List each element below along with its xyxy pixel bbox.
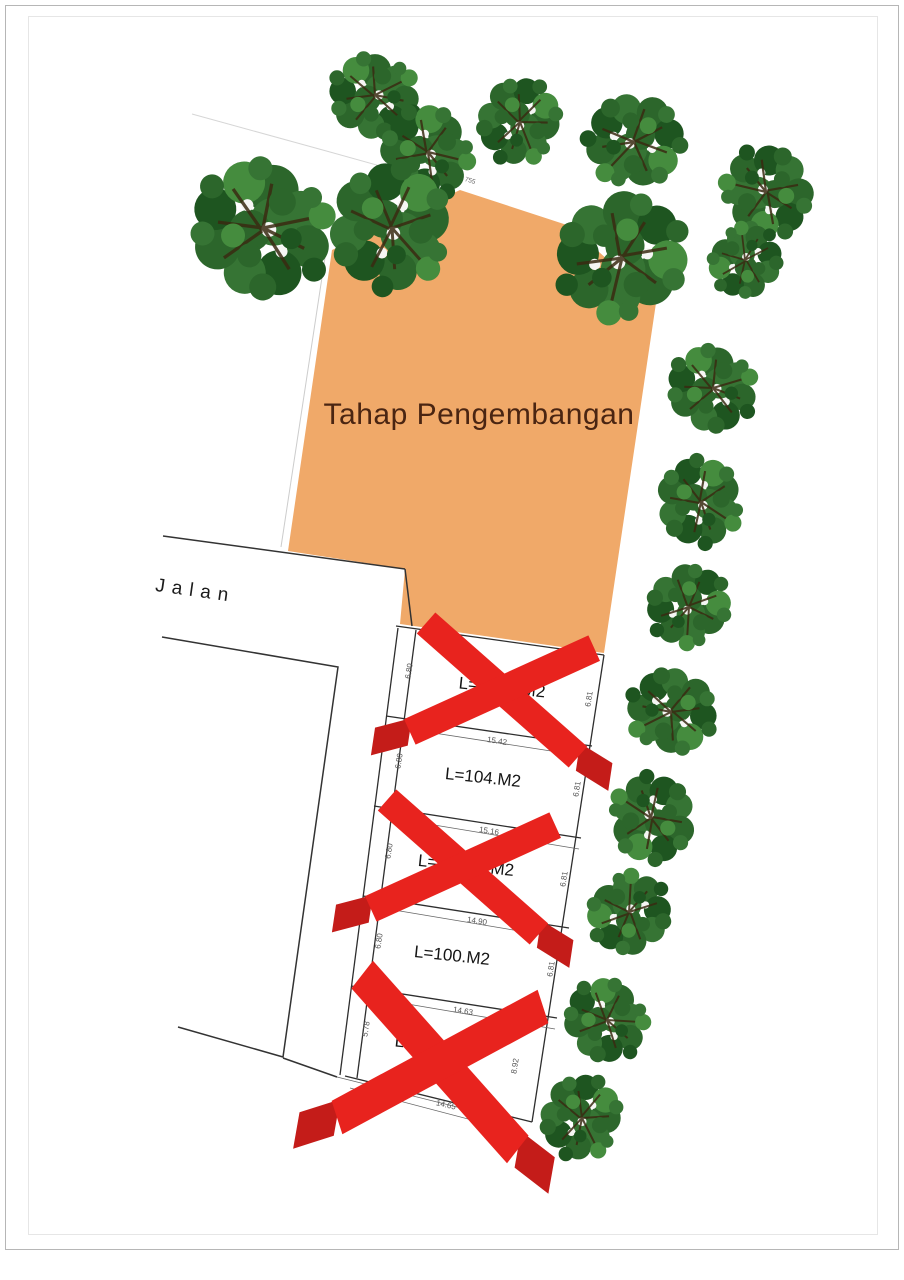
plot-5-dim-bottom: 14.65 (435, 1098, 457, 1111)
plot-5-label: L= 2 (394, 1032, 482, 1061)
plot-1-label-right: M2 (521, 680, 547, 702)
plot-2-label: L=104.M2 (444, 764, 522, 792)
plot-2-dim-right: 6.81 (571, 781, 582, 798)
plot-2-label-text: L=104.M2 (444, 764, 522, 792)
plot-5-dim-right: 8.92 (509, 1058, 520, 1075)
plot-2-dim-left: 6.80 (393, 753, 404, 770)
plot-4-label: L=100.M2 (413, 942, 491, 970)
road-label: Jalan (154, 575, 237, 608)
plot-1-dim-left: 6.80 (403, 663, 414, 680)
plot-3-dim-left: 6.80 (383, 843, 394, 860)
plot-2-dim-bottom: 15.16 (478, 825, 499, 837)
site-plan-page: Tahap Pengembangan 755 Jalan L= M2 6.80 … (0, 0, 904, 1280)
plot-1-label: L= M2 (458, 674, 547, 703)
plot-4-dim-left: 6.80 (373, 933, 384, 950)
plot-5-label-right: 2 (471, 1040, 483, 1061)
plot-5-label-left: L= (394, 1032, 415, 1054)
plot-3-label-right: M2 (489, 859, 515, 881)
plot-4-dim-right: 6.81 (545, 961, 556, 978)
plot-1-dim-right: 6.81 (583, 691, 594, 708)
labels-layer: Tahap Pengembangan 755 Jalan L= M2 6.80 … (0, 0, 904, 1280)
plot-1-dim-bottom: 15.42 (486, 735, 507, 747)
development-top-dimension: 755 (464, 176, 476, 186)
plot-3-dim-right: 6.81 (558, 871, 569, 888)
plot-4-label-text: L=100.M2 (413, 942, 491, 970)
plot-5-dim-left: 5.78 (360, 1021, 371, 1038)
plot-3-dim-bottom: 14.90 (466, 915, 487, 927)
plot-1-label-left: L= (458, 674, 479, 696)
development-area-label: Tahap Pengembangan (324, 398, 635, 432)
plot-3-label-left: L=1 (417, 851, 448, 874)
plot-4-dim-bottom: 14.63 (452, 1005, 473, 1017)
plot-3-label: L=1 M2 (417, 851, 515, 881)
